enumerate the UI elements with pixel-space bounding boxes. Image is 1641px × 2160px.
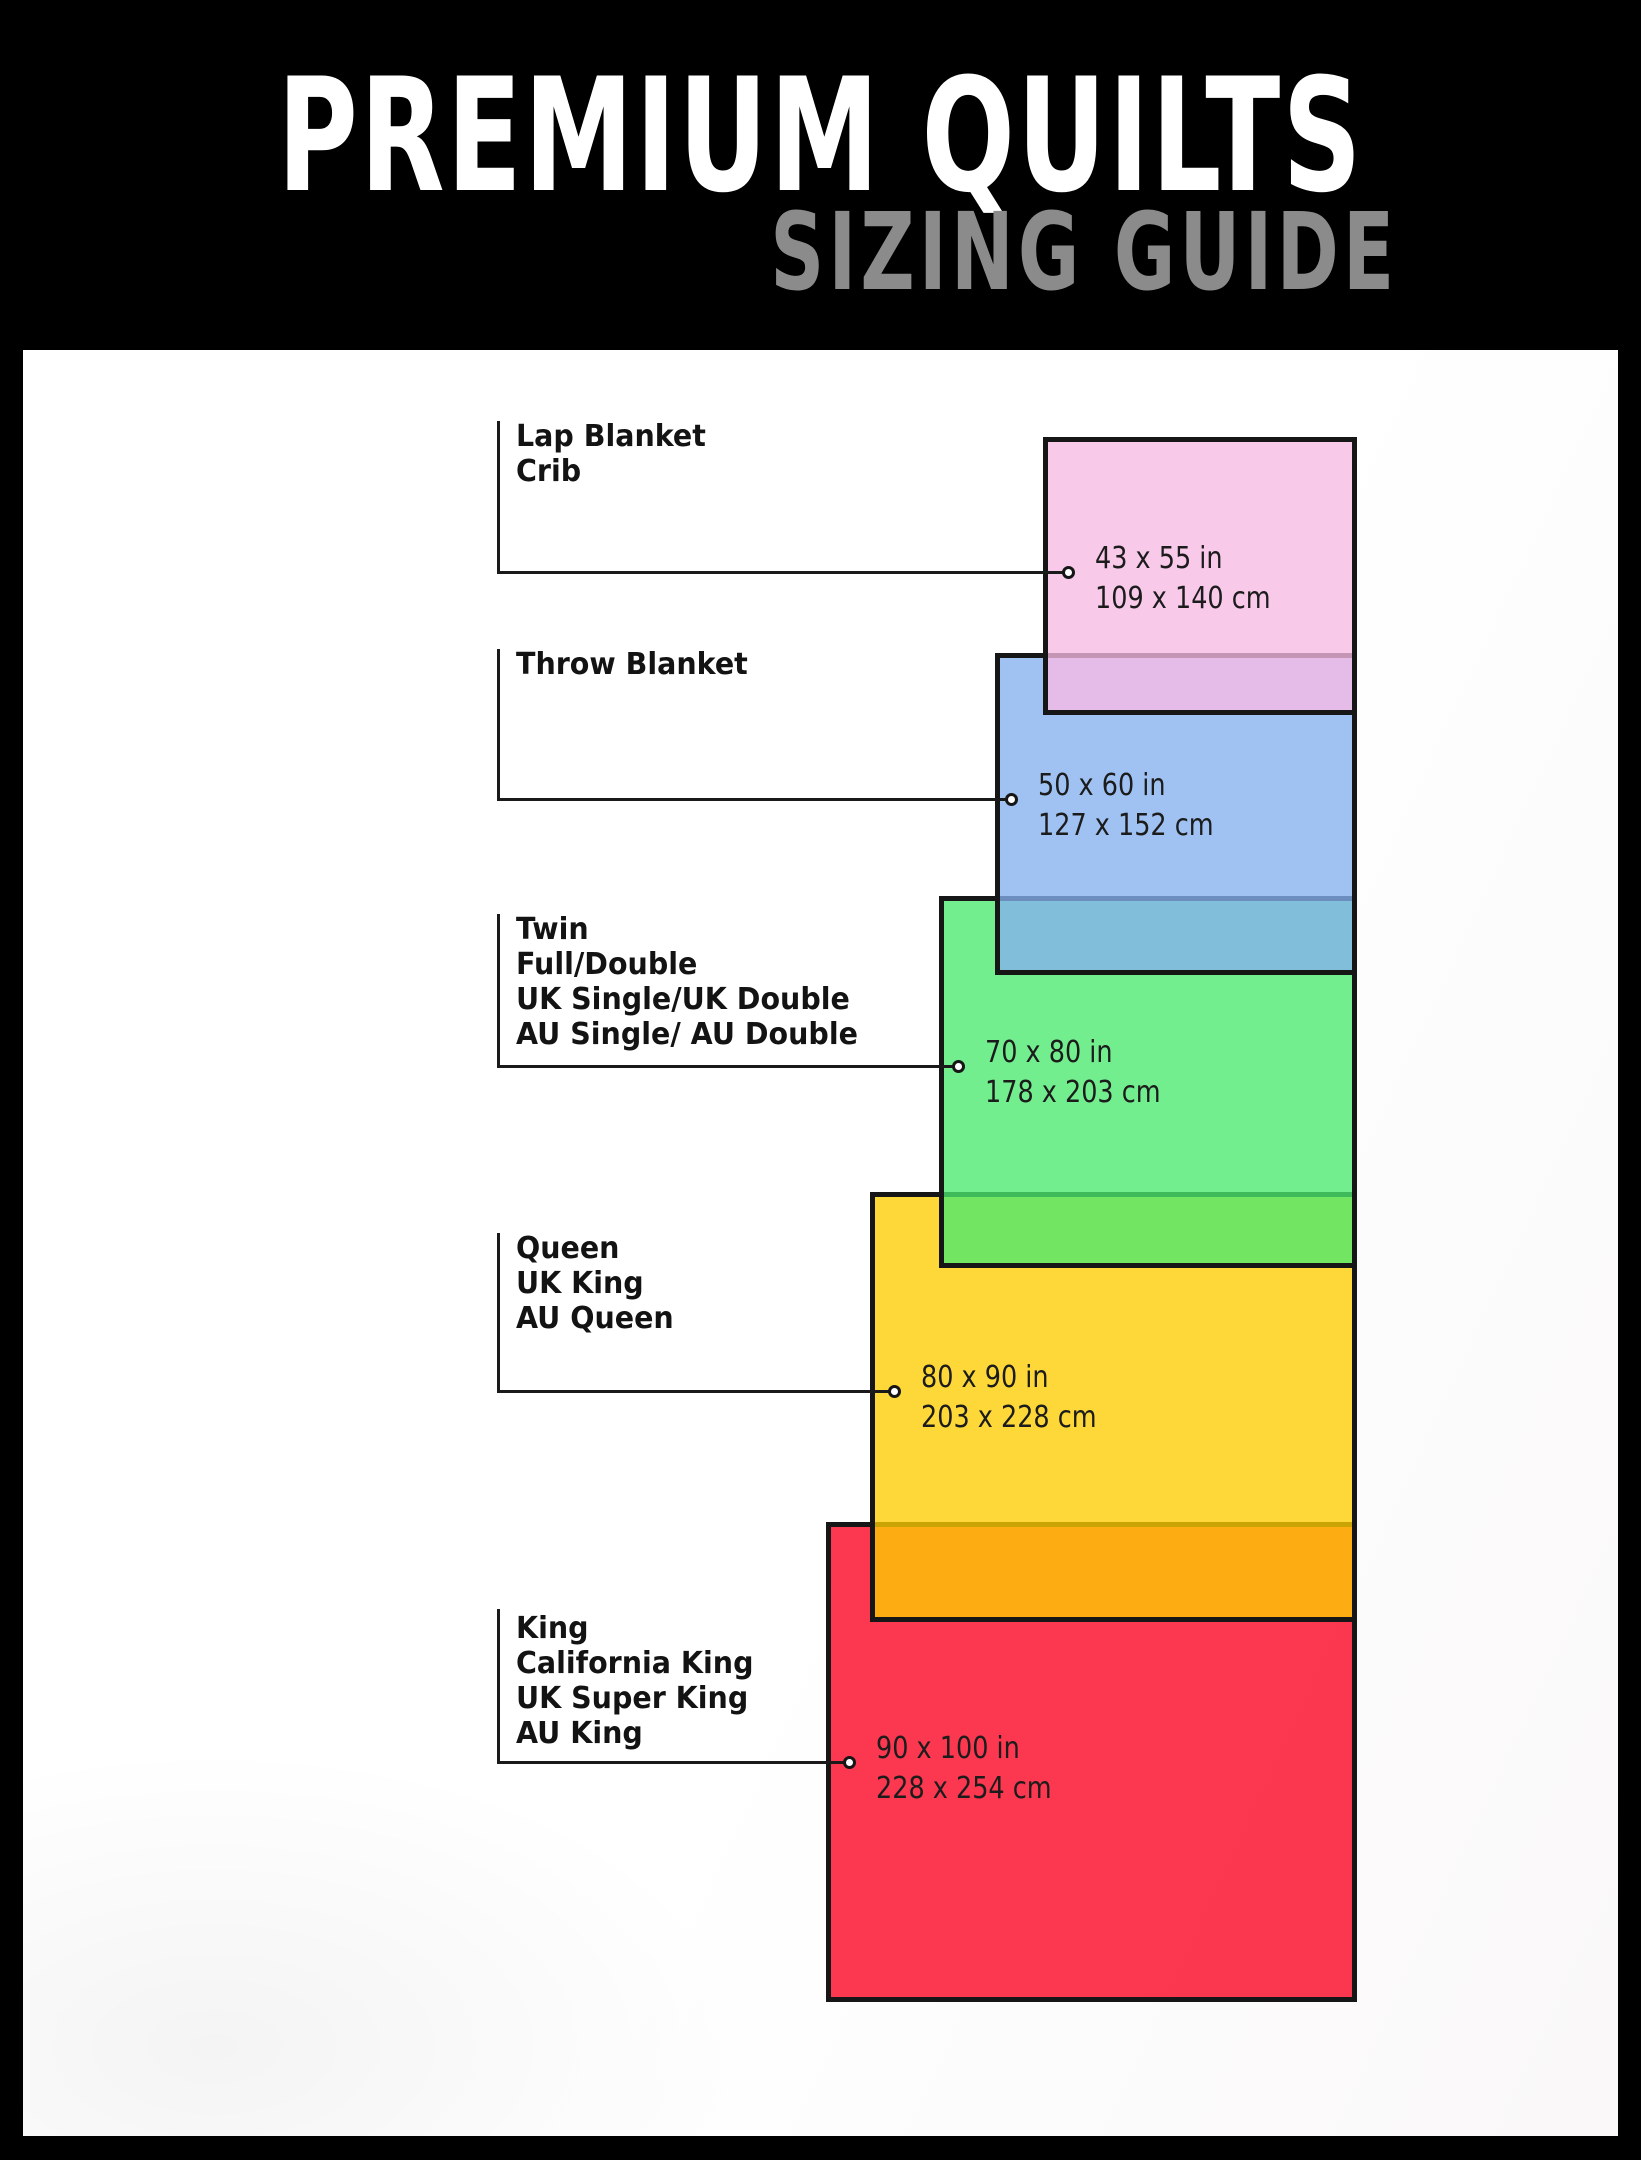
- label-line: UK King: [516, 1266, 674, 1301]
- label-block-lap: Lap Blanket Crib: [516, 419, 706, 489]
- leader-hline-queen: [497, 1390, 895, 1393]
- leader-vline-lap: [497, 421, 500, 574]
- label-block-twin: Twin Full/Double UK Single/UK Double AU …: [516, 912, 858, 1052]
- dims-cm: 178 x 203 cm: [985, 1073, 1161, 1113]
- label-block-king: King California King UK Super King AU Ki…: [516, 1611, 753, 1751]
- dims-queen: 80 x 90 in 203 x 228 cm: [921, 1358, 1097, 1438]
- label-block-queen: Queen UK King AU Queen: [516, 1231, 674, 1336]
- dims-cm: 127 x 152 cm: [1038, 806, 1214, 846]
- dims-cm: 109 x 140 cm: [1095, 579, 1271, 619]
- label-line: Lap Blanket: [516, 419, 706, 454]
- dims-cm: 228 x 254 cm: [876, 1769, 1052, 1809]
- leader-hline-throw: [497, 798, 1012, 801]
- page-subtitle: SIZING GUIDE: [770, 200, 1398, 307]
- leader-dot-icon: [1062, 566, 1075, 579]
- dims-lap: 43 x 55 in 109 x 140 cm: [1095, 539, 1271, 619]
- leader-dot-icon: [843, 1756, 856, 1769]
- label-line: AU King: [516, 1716, 753, 1751]
- dims-king: 90 x 100 in 228 x 254 cm: [876, 1729, 1052, 1809]
- infographic-page: PREMIUM QUILTS SIZING GUIDE Lap Blanket …: [0, 0, 1641, 2160]
- leader-vline-throw: [497, 649, 500, 801]
- leader-dot-icon: [888, 1385, 901, 1398]
- dims-inches: 43 x 55 in: [1095, 539, 1271, 579]
- dims-cm: 203 x 228 cm: [921, 1398, 1097, 1438]
- label-line: Full/Double: [516, 947, 858, 982]
- label-block-throw: Throw Blanket: [516, 647, 748, 682]
- label-line: Queen: [516, 1231, 674, 1266]
- dims-inches: 90 x 100 in: [876, 1729, 1052, 1769]
- leader-vline-queen: [497, 1233, 500, 1393]
- label-line: UK Super King: [516, 1681, 753, 1716]
- label-line: Twin: [516, 912, 858, 947]
- dims-inches: 70 x 80 in: [985, 1033, 1161, 1073]
- label-line: AU Queen: [516, 1301, 674, 1336]
- leader-vline-twin: [497, 914, 500, 1068]
- leader-hline-lap: [497, 571, 1069, 574]
- label-line: Crib: [516, 454, 706, 489]
- dims-throw: 50 x 60 in 127 x 152 cm: [1038, 766, 1214, 846]
- dims-twin: 70 x 80 in 178 x 203 cm: [985, 1033, 1161, 1113]
- label-line: California King: [516, 1646, 753, 1681]
- leader-hline-twin: [497, 1065, 959, 1068]
- diagram-canvas: [23, 350, 1618, 2136]
- dims-inches: 50 x 60 in: [1038, 766, 1214, 806]
- leader-hline-king: [497, 1761, 850, 1764]
- label-line: Throw Blanket: [516, 647, 748, 682]
- label-line: UK Single/UK Double: [516, 982, 858, 1017]
- label-line: King: [516, 1611, 753, 1646]
- leader-dot-icon: [1005, 793, 1018, 806]
- dims-inches: 80 x 90 in: [921, 1358, 1097, 1398]
- leader-dot-icon: [952, 1060, 965, 1073]
- label-line: AU Single/ AU Double: [516, 1017, 858, 1052]
- leader-vline-king: [497, 1609, 500, 1764]
